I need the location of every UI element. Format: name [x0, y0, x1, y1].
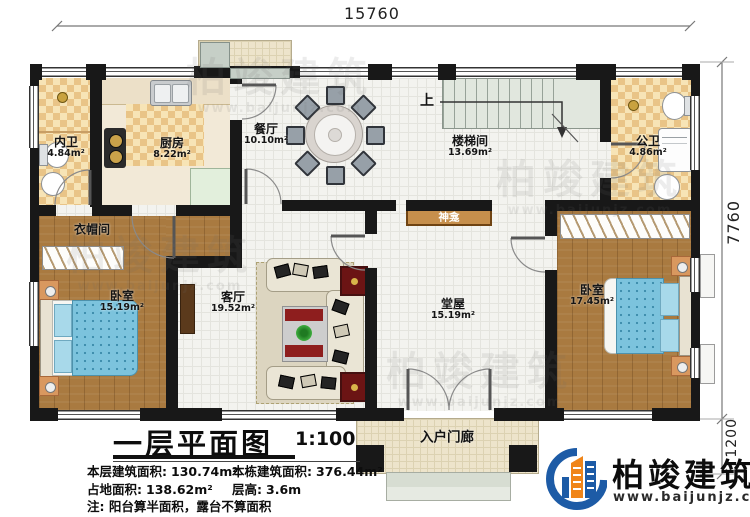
stat-value: 376.44m²: [316, 464, 383, 479]
room-label-kitchen: 厨房 8.22m²: [153, 137, 191, 161]
door-arc: [55, 170, 90, 205]
door-arc: [511, 238, 545, 272]
stat-building-area: 本栋建筑面积:376.44m²: [232, 461, 387, 480]
room-area: 4.84m²: [47, 149, 85, 160]
stair-up-line: [440, 102, 562, 128]
stat-label: 层高:: [232, 482, 262, 497]
room-label-hall: 堂屋 15.19m²: [431, 298, 475, 322]
stat-value: 138.62m²: [146, 482, 213, 497]
room-label-dining: 餐厅 10.10m²: [244, 123, 288, 147]
room-area: 15.19m²: [431, 311, 475, 322]
door-arc: [408, 369, 449, 410]
room-label-cloakroom: 衣帽间: [74, 223, 110, 236]
stairs-up-label: 上: [420, 94, 434, 110]
door-arc: [331, 236, 365, 270]
room-area: 4.86m²: [629, 148, 667, 159]
room-area: 15.19m²: [100, 303, 144, 314]
door-arc: [246, 169, 281, 204]
stat-label: 占地面积:: [87, 482, 142, 497]
stat-floor-area: 本层建筑面积:130.74m²: [87, 461, 242, 480]
stat-value: 3.6m: [266, 482, 301, 497]
plan-scale: 1:100: [295, 428, 355, 450]
room-area: 17.45m²: [570, 297, 614, 308]
logo-building-orange: [571, 456, 583, 498]
room-area: 8.22m²: [153, 150, 191, 161]
door-arc: [242, 85, 276, 119]
dim-right-height: 7760: [724, 200, 743, 245]
room-label-shrine: 神龛: [439, 209, 460, 224]
room-area: 10.10m²: [244, 136, 288, 147]
title-underline: [113, 455, 295, 459]
dim-top-width: 15760: [344, 4, 400, 23]
stat-note: 注: 阳台算半面积，露台不算面积: [87, 496, 271, 515]
room-label-stairwell: 楼梯间 13.69m²: [448, 135, 492, 159]
door-arc: [449, 369, 490, 410]
logo-block-left: [562, 477, 569, 498]
room-name: 入户门廊: [420, 430, 474, 445]
floor-plan-canvas: 内卫 4.84m² 厨房 8.22m² 餐厅 10.10m² 楼梯间 13.69…: [0, 0, 750, 517]
room-label-living: 客厅 19.52m²: [211, 291, 255, 315]
room-area: 13.69m²: [448, 148, 492, 159]
room-label-bedroom-left: 卧室 15.19m²: [100, 290, 144, 314]
door-arc: [132, 216, 174, 258]
dimension-lines: [52, 21, 734, 479]
stat-label: 本层建筑面积:: [87, 464, 167, 479]
room-label-bedroom-right: 卧室 17.45m²: [570, 284, 614, 308]
door-arcs: [55, 85, 645, 410]
brand-logo-icon: [543, 447, 607, 511]
stat-value: 130.74m²: [171, 464, 238, 479]
room-label-bathroom2: 公卫 4.86m²: [629, 135, 667, 159]
stat-label: 本栋建筑面积:: [232, 464, 312, 479]
stair-break-line: [552, 114, 578, 142]
room-label-bathroom1: 内卫 4.84m²: [47, 136, 85, 160]
room-area: 19.52m²: [211, 304, 255, 315]
room-label-entry-porch: 入户门廊: [420, 430, 474, 445]
room-name: 衣帽间: [74, 223, 110, 236]
brand-website: www.baijunjz.com: [613, 490, 750, 505]
